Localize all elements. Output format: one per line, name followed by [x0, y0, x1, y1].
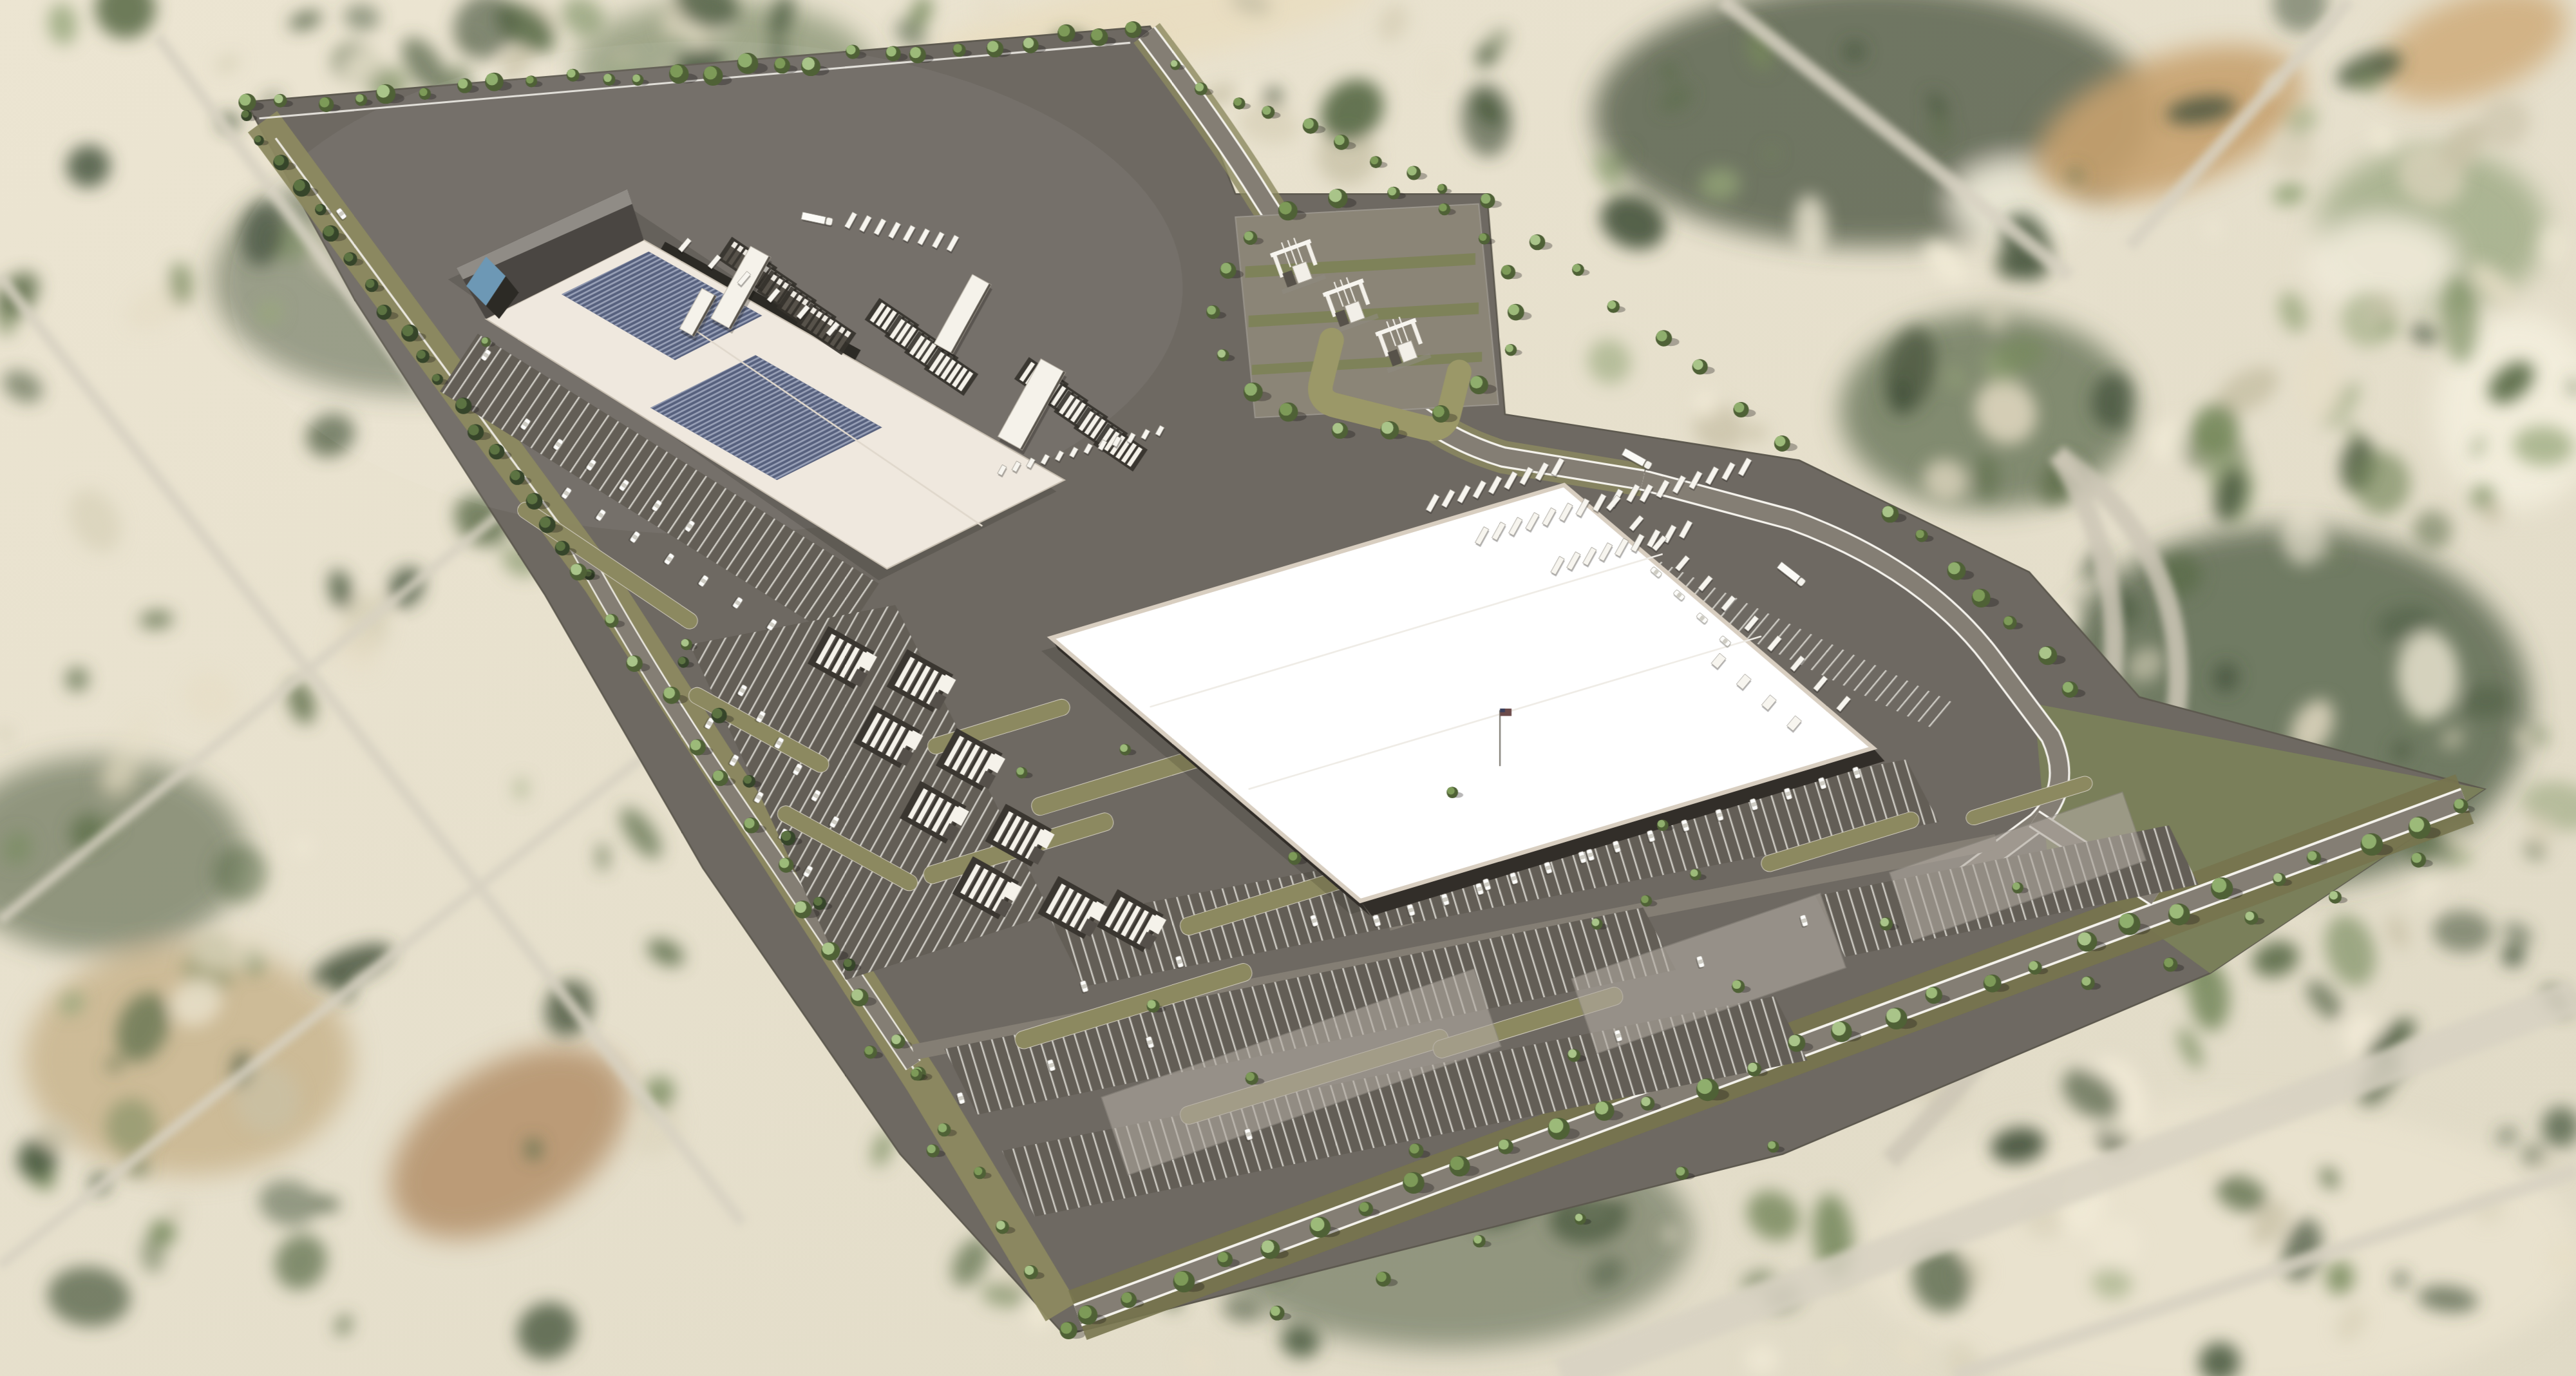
tree-canopy-light	[1607, 301, 1616, 309]
tree-canopy-light	[377, 305, 387, 315]
tree-canopy-light	[2362, 834, 2376, 849]
tree-canopy-light	[927, 1145, 935, 1153]
tree-canopy-light	[1218, 1252, 1228, 1263]
tree-canopy-light	[1091, 29, 1103, 41]
tree-canopy-light	[1279, 202, 1292, 215]
tree-canopy-light	[526, 76, 534, 84]
tree-canopy-light	[911, 1069, 919, 1077]
tree-canopy-light	[2029, 961, 2038, 970]
tree-canopy-light	[1595, 1102, 1608, 1114]
tree-canopy-light	[605, 615, 614, 624]
tree-canopy-light	[1748, 1063, 1757, 1073]
tree-canopy-light	[704, 66, 717, 79]
tree-canopy-light	[1381, 421, 1394, 434]
tree-canopy-light	[240, 94, 251, 106]
tree-canopy-light	[670, 64, 683, 77]
tree-canopy-light	[2003, 616, 2012, 626]
tree-canopy-light	[1303, 119, 1314, 129]
tree-canopy-light	[1450, 1156, 1464, 1170]
tree-canopy-light	[355, 94, 363, 102]
tree-canopy-light	[1775, 436, 1785, 446]
tree-canopy-light	[2212, 878, 2227, 893]
tree-canopy-light	[1506, 345, 1513, 352]
tree-canopy-light	[663, 687, 675, 699]
tree-canopy-light	[2169, 904, 2183, 919]
tree-canopy-light	[2039, 647, 2051, 659]
tree-canopy-light	[1147, 1000, 1155, 1008]
tree-canopy-light	[1530, 234, 1540, 245]
tree-canopy-light	[1973, 589, 1985, 602]
tree-canopy-light	[1447, 787, 1455, 795]
tree-canopy-light	[632, 75, 640, 82]
tree-canopy-light	[1289, 852, 1297, 861]
tree-canopy-light	[1693, 359, 1703, 370]
tree-canopy-light	[1120, 744, 1128, 752]
tree-canopy-light	[2412, 853, 2421, 863]
tree-canopy-light	[274, 94, 283, 103]
tree-canopy-light	[822, 942, 835, 955]
tree-canopy-light	[527, 493, 538, 504]
tree-canopy-light	[2307, 851, 2317, 861]
tree-canopy-light	[433, 374, 440, 381]
tree-canopy-light	[417, 350, 426, 359]
tree-canopy-light	[987, 41, 998, 52]
tree-canopy-light	[1568, 1049, 1577, 1058]
tree-canopy-light	[402, 325, 413, 337]
tree-canopy-light	[1262, 1240, 1274, 1253]
tree-canopy-light	[323, 225, 334, 236]
tree-canopy-light	[482, 338, 488, 344]
tree-canopy-light	[1916, 530, 1924, 538]
tree-canopy-light	[1171, 60, 1177, 66]
tree-canopy-light	[567, 69, 576, 77]
tree-canopy-light	[1658, 820, 1665, 828]
tree-canopy-light	[1438, 184, 1444, 191]
tree-canopy-light	[1499, 1140, 1509, 1150]
tree-canopy-light	[319, 97, 329, 107]
tree-canopy-light	[1470, 376, 1482, 388]
tree-canopy-light	[1788, 1035, 1800, 1046]
tree-canopy-light	[1218, 350, 1226, 358]
tree-canopy-light	[891, 1035, 901, 1044]
tree-canopy-light	[1023, 37, 1034, 48]
tree-canopy-light	[254, 136, 261, 142]
tree-canopy-light	[681, 639, 689, 647]
tree-canopy-light	[781, 831, 791, 841]
aerial-rendering-viewport	[0, 0, 2576, 1376]
tree-canopy-light	[775, 58, 786, 69]
tree-canopy-light	[1025, 1266, 1034, 1275]
tree-canopy-light	[1926, 987, 1938, 999]
tree-canopy-light	[1832, 1022, 1846, 1035]
tree-canopy-light	[2164, 958, 2173, 968]
tree-canopy-light	[1575, 1214, 1583, 1221]
tree-canopy-light	[377, 85, 390, 98]
tree-canopy-light	[366, 279, 375, 288]
tree-canopy-light	[2409, 817, 2424, 832]
tree-canopy-light	[1195, 82, 1204, 91]
tree-canopy-light	[953, 44, 962, 53]
tree-canopy-light	[2454, 799, 2464, 808]
tree-canopy-light	[1262, 106, 1271, 115]
tree-canopy-light	[1271, 1306, 1280, 1316]
tree-canopy-light	[1734, 403, 1745, 413]
tree-canopy-light	[910, 47, 921, 58]
tree-canopy-light	[556, 541, 565, 551]
tree-canopy-light	[851, 989, 863, 1000]
tree-canopy-light	[938, 1123, 947, 1132]
tree-canopy-light	[1473, 1236, 1482, 1244]
tree-canopy-light	[419, 88, 427, 96]
tree-canopy-light	[1882, 506, 1894, 517]
tree-canopy-light	[1433, 406, 1444, 417]
tree-canopy-light	[1359, 1202, 1369, 1212]
tree-canopy-light	[678, 657, 686, 665]
tree-canopy-light	[712, 709, 723, 719]
tree-canopy-light	[1886, 1008, 1900, 1022]
tree-canopy-light	[1549, 1118, 1563, 1132]
tree-canopy-light	[1508, 304, 1519, 315]
tree-canopy-light	[274, 155, 284, 166]
tree-canopy-light	[1656, 330, 1667, 341]
tree-canopy-light	[1479, 233, 1487, 241]
tree-canopy-light	[627, 656, 638, 667]
tree-canopy-light	[456, 398, 467, 409]
tree-canopy-light	[1244, 383, 1257, 396]
tree-canopy-light	[1984, 975, 1996, 987]
tree-canopy-light	[1697, 1079, 1712, 1094]
tree-canopy-light	[779, 858, 789, 868]
tree-canopy-light	[1690, 869, 1698, 877]
tree-canopy-light	[1880, 918, 1889, 926]
tree-canopy-light	[744, 818, 755, 828]
tree-canopy-light	[1377, 1272, 1387, 1282]
tree-canopy-light	[1016, 767, 1024, 775]
tree-canopy-light	[2329, 891, 2338, 899]
tree-canopy-light	[1573, 264, 1580, 272]
tree-canopy-light	[316, 204, 323, 212]
tree-canopy-light	[996, 1221, 1005, 1230]
tree-canopy-light	[486, 73, 498, 86]
tree-canopy-light	[1244, 231, 1253, 240]
tree-canopy-light	[1058, 25, 1070, 37]
tree-canopy-light	[1329, 189, 1342, 202]
tree-canopy-light	[1481, 194, 1490, 204]
tree-canopy-light	[1768, 1141, 1776, 1149]
tree-canopy-light	[2081, 977, 2090, 986]
tree-canopy-light	[1334, 135, 1345, 146]
tree-canopy-light	[690, 740, 701, 750]
tree-canopy-light	[344, 253, 353, 262]
tree-canopy-light	[540, 517, 551, 528]
tree-canopy-light	[795, 901, 806, 913]
tree-canopy-light	[846, 45, 856, 55]
tree-canopy-light	[1207, 305, 1216, 314]
tree-canopy-light	[2078, 932, 2092, 946]
tree-canopy-light	[241, 110, 249, 117]
tree-canopy-light	[738, 53, 752, 68]
tree-canopy-light	[1948, 562, 1960, 575]
tree-canopy-light	[1732, 980, 1741, 989]
tree-canopy-light	[1220, 263, 1231, 274]
tree-canopy-light	[865, 1046, 873, 1055]
tree-canopy-light	[1280, 403, 1293, 416]
tree-canopy-light	[1407, 166, 1416, 175]
us-flag-union	[1500, 709, 1505, 712]
tree-canopy-light	[1370, 157, 1379, 165]
tree-canopy-light	[1404, 1173, 1418, 1187]
tree-canopy-light	[974, 1167, 983, 1176]
tree-canopy-light	[458, 79, 468, 88]
tree-canopy-light	[1676, 1167, 1685, 1176]
tree-canopy-light	[1502, 265, 1511, 275]
tree-canopy-light	[1126, 22, 1137, 33]
tree-canopy-light	[1234, 98, 1242, 106]
tree-canopy-light	[603, 74, 612, 82]
tree-canopy-light	[2012, 883, 2020, 890]
tree-canopy-light	[1332, 423, 1343, 434]
tree-canopy-light	[813, 897, 822, 906]
tree-canopy-light	[1592, 919, 1600, 926]
tree-canopy-light	[1439, 204, 1446, 211]
tree-canopy-light	[2119, 913, 2134, 928]
tree-canopy-light	[571, 564, 582, 575]
tree-canopy-light	[1641, 895, 1649, 903]
tree-canopy-light	[1388, 187, 1396, 195]
truck-cab	[825, 217, 833, 226]
tree-canopy-light	[1174, 1272, 1188, 1286]
tree-canopy-light	[713, 770, 724, 781]
tree-canopy-light	[802, 57, 815, 70]
tree-canopy-light	[294, 180, 305, 191]
tree-canopy-light	[1311, 1218, 1325, 1232]
tree-canopy-light	[1121, 1292, 1132, 1303]
aerial-rendering	[0, 0, 2576, 1376]
tree-canopy-light	[1410, 1144, 1419, 1154]
tree-canopy-light	[743, 776, 752, 784]
tree-canopy-light	[1641, 1097, 1650, 1106]
tree-canopy-light	[468, 425, 479, 435]
tree-canopy-light	[886, 46, 896, 57]
tree-canopy-light	[2273, 874, 2282, 883]
tree-canopy-light	[1246, 1072, 1255, 1080]
tree-canopy-light	[489, 444, 500, 455]
tree-canopy-light	[1061, 1323, 1072, 1334]
tree-canopy-light	[2063, 682, 2074, 693]
tree-canopy-light	[511, 470, 520, 480]
tree-canopy-light	[844, 959, 852, 967]
tree-canopy-light	[2245, 912, 2254, 921]
tree-canopy-light	[1079, 1306, 1092, 1319]
